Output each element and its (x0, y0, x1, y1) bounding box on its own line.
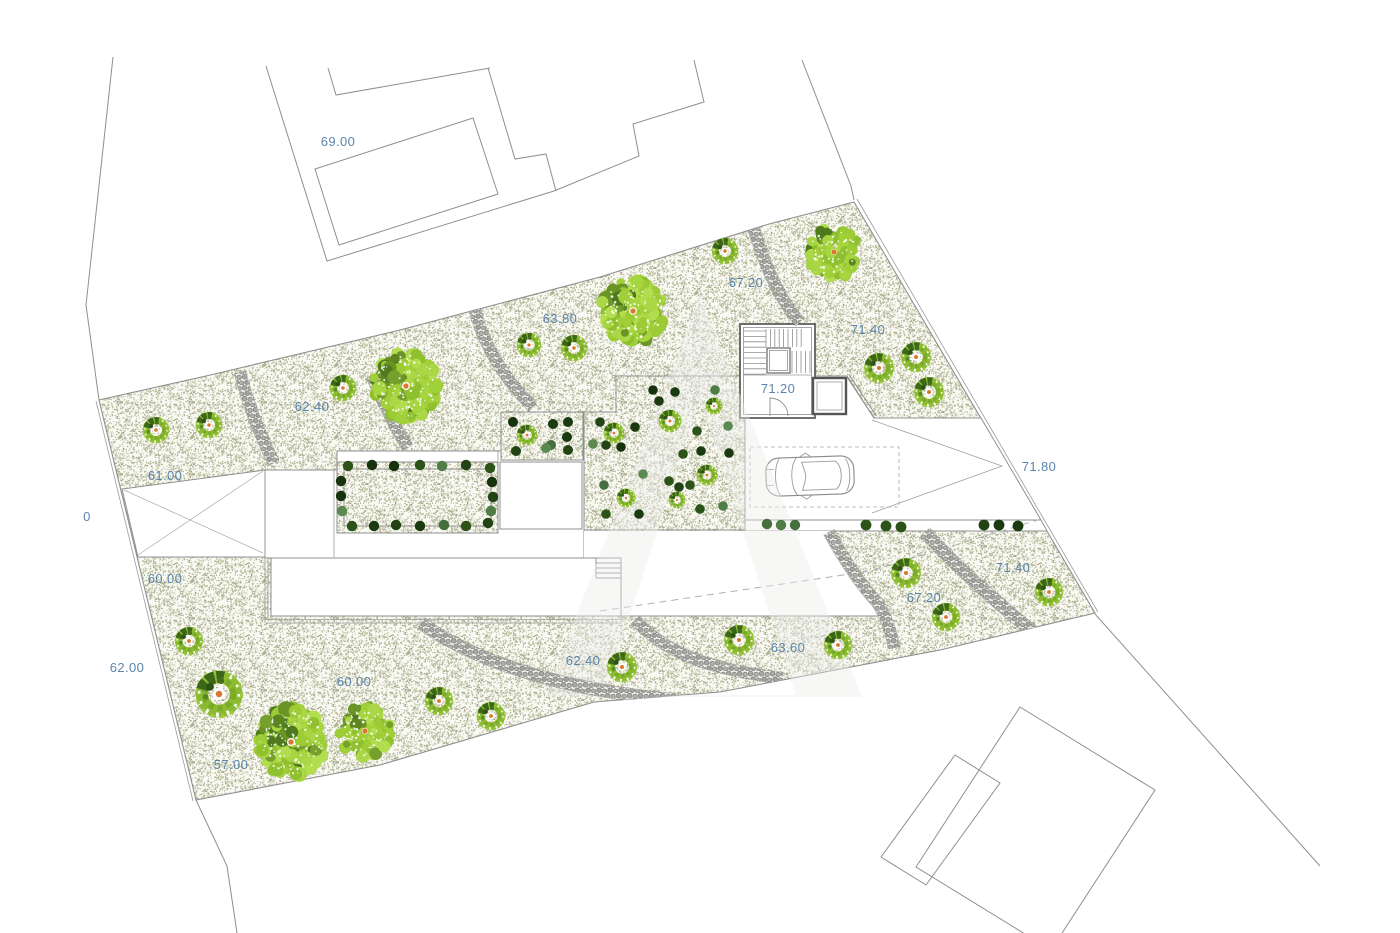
svg-text:0: 0 (83, 509, 91, 524)
svg-text:67.20: 67.20 (729, 275, 764, 290)
svg-text:57.00: 57.00 (214, 757, 249, 772)
svg-text:71.40: 71.40 (851, 322, 886, 337)
svg-text:69.00: 69.00 (321, 134, 356, 149)
svg-text:62.40: 62.40 (295, 399, 330, 414)
svg-text:71.40: 71.40 (996, 560, 1031, 575)
svg-text:62.00: 62.00 (110, 660, 145, 675)
svg-text:71.20: 71.20 (761, 381, 796, 396)
svg-text:67.20: 67.20 (907, 590, 942, 605)
svg-text:61.00: 61.00 (148, 468, 183, 483)
svg-text:63.80: 63.80 (543, 311, 578, 326)
svg-text:62.40: 62.40 (566, 653, 601, 668)
svg-text:60.00: 60.00 (337, 674, 372, 689)
svg-text:60.00: 60.00 (148, 571, 183, 586)
svg-text:71.80: 71.80 (1022, 459, 1057, 474)
svg-text:63.60: 63.60 (771, 640, 806, 655)
